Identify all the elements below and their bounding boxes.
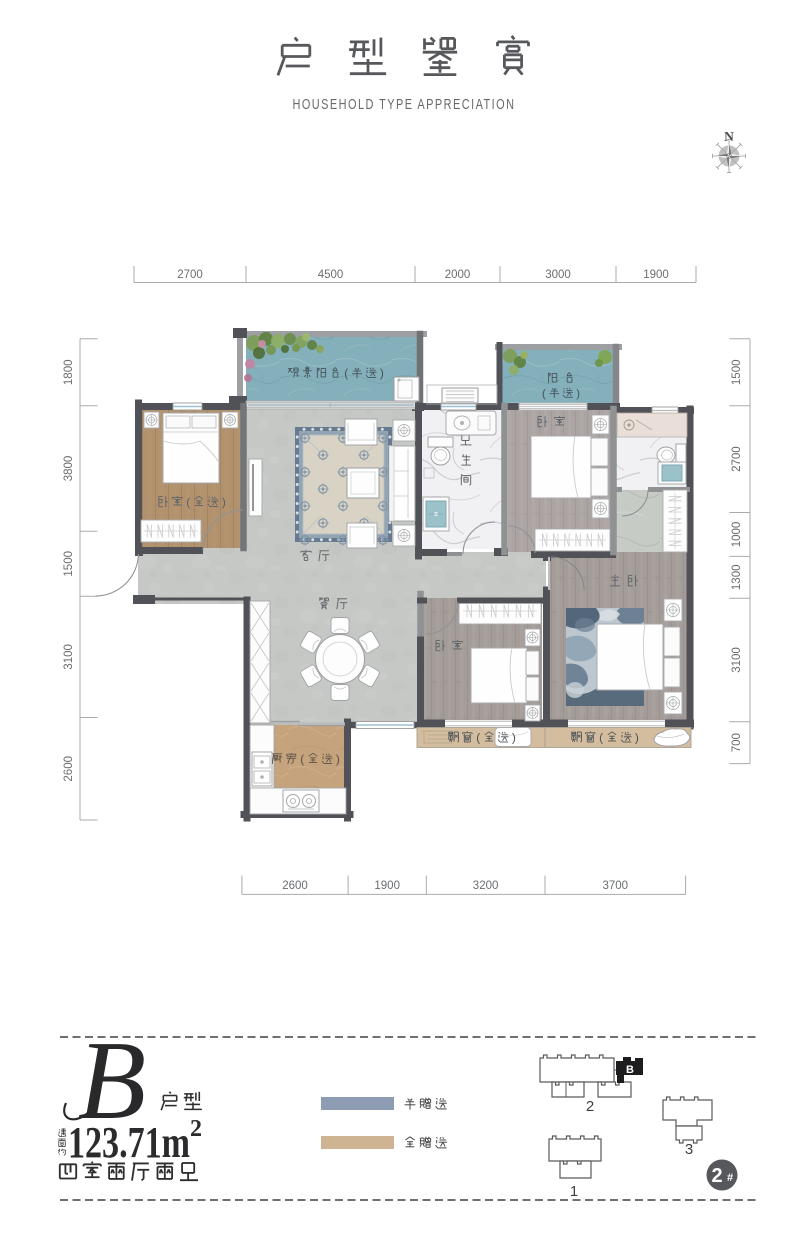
- svg-text:2: 2: [711, 1165, 722, 1187]
- svg-text:#: #: [727, 1172, 733, 1184]
- svg-text:N: N: [724, 129, 734, 144]
- svg-text:2000: 2000: [445, 269, 471, 281]
- svg-text:1300: 1300: [731, 565, 743, 591]
- svg-text:1000: 1000: [731, 522, 743, 548]
- svg-text:): ): [336, 752, 340, 766]
- svg-text:1: 1: [570, 1183, 578, 1200]
- svg-text:2: 2: [586, 1098, 594, 1115]
- svg-text:(: (: [476, 731, 480, 745]
- svg-text:(: (: [599, 731, 603, 745]
- svg-text:): ): [222, 495, 226, 509]
- svg-text:1500: 1500: [63, 551, 75, 577]
- svg-text:3800: 3800: [63, 456, 75, 482]
- svg-text:1900: 1900: [643, 269, 669, 281]
- svg-text:3000: 3000: [545, 269, 571, 281]
- svg-text:(: (: [344, 366, 348, 380]
- svg-text:HOUSEHOLD TYPE APPRECIATION: HOUSEHOLD TYPE APPRECIATION: [293, 96, 516, 113]
- svg-text:B: B: [626, 1064, 634, 1076]
- svg-text:(: (: [300, 752, 304, 766]
- svg-text:700: 700: [731, 733, 743, 752]
- svg-text:): ): [380, 366, 384, 380]
- svg-text:3100: 3100: [63, 644, 75, 670]
- svg-text:4500: 4500: [318, 269, 344, 281]
- svg-text:2700: 2700: [177, 269, 203, 281]
- svg-text:3100: 3100: [731, 647, 743, 673]
- svg-text:): ): [576, 388, 580, 400]
- svg-text:1500: 1500: [731, 360, 743, 386]
- svg-text:(: (: [186, 495, 190, 509]
- svg-text:3200: 3200: [473, 880, 499, 892]
- svg-text:1800: 1800: [63, 360, 75, 386]
- svg-text:123.71m: 123.71m: [68, 1118, 190, 1167]
- svg-text:2600: 2600: [63, 756, 75, 782]
- svg-text:(: (: [542, 388, 546, 400]
- svg-text:): ): [635, 731, 639, 745]
- svg-text:3700: 3700: [603, 880, 629, 892]
- svg-text:2600: 2600: [282, 880, 308, 892]
- svg-text:1900: 1900: [374, 880, 400, 892]
- svg-text:2: 2: [190, 1116, 202, 1142]
- svg-text:): ): [512, 731, 516, 745]
- svg-text:3: 3: [685, 1141, 693, 1158]
- svg-text:2700: 2700: [731, 446, 743, 472]
